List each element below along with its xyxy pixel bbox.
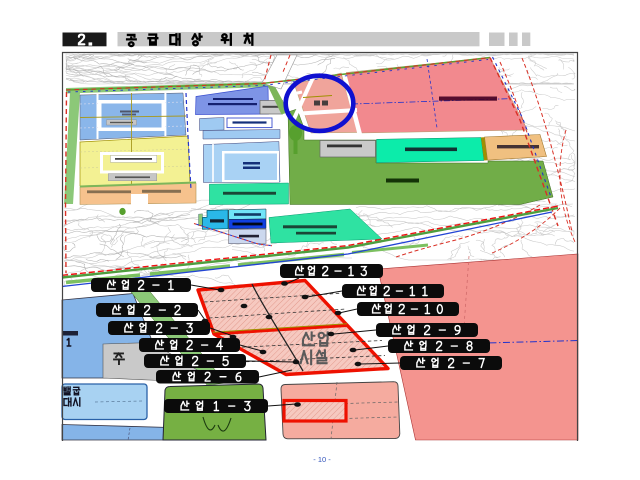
svg-text:- 10 -: - 10 -	[313, 455, 331, 464]
